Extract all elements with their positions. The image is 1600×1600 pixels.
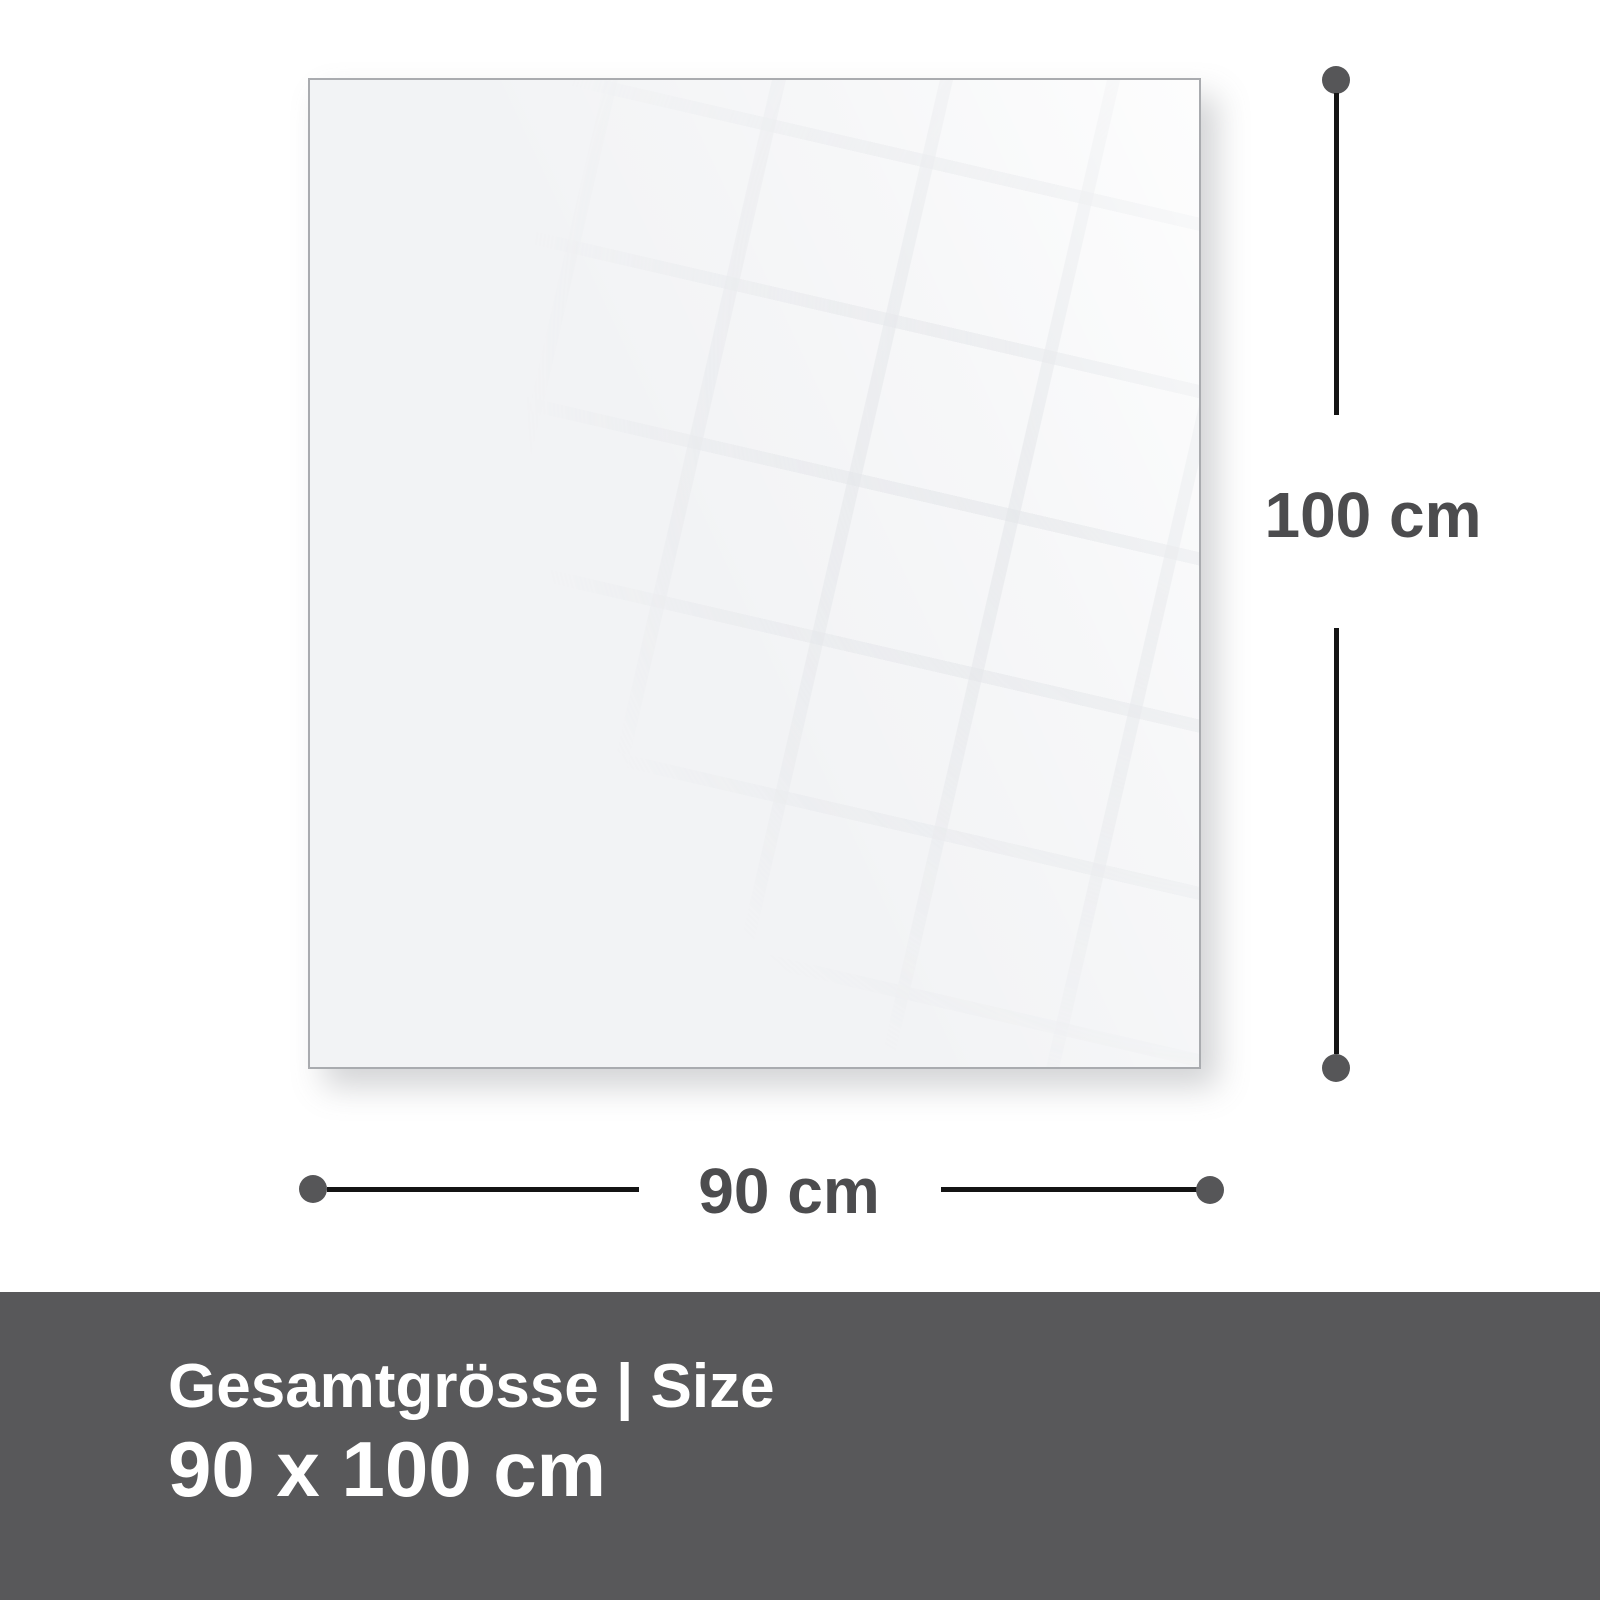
height-dimension-label: 100 cm (1243, 480, 1503, 550)
height-dimension-line-top-segment (1334, 93, 1339, 415)
width-dimension-left-dot (299, 1175, 327, 1203)
footer-bar: Gesamtgrösse | Size 90 x 100 cm (0, 1292, 1600, 1600)
width-dimension-label: 90 cm (684, 1156, 894, 1226)
gloss-sheen-overlay (310, 80, 1199, 1067)
footer-size-title: Gesamtgrösse | Size (168, 1352, 775, 1422)
height-dimension-line-bottom-segment (1334, 628, 1339, 1054)
height-dimension-top-dot (1322, 66, 1350, 94)
width-dimension-right-dot (1196, 1176, 1224, 1204)
product-panel (308, 78, 1201, 1069)
width-dimension-line-left-segment (327, 1187, 639, 1192)
product-size-diagram: 100 cm 90 cm Gesamtgrösse | Size 90 x 10… (0, 0, 1600, 1600)
footer-size-value: 90 x 100 cm (168, 1426, 606, 1512)
height-dimension-bottom-dot (1322, 1054, 1350, 1082)
width-dimension-line-right-segment (941, 1187, 1198, 1192)
